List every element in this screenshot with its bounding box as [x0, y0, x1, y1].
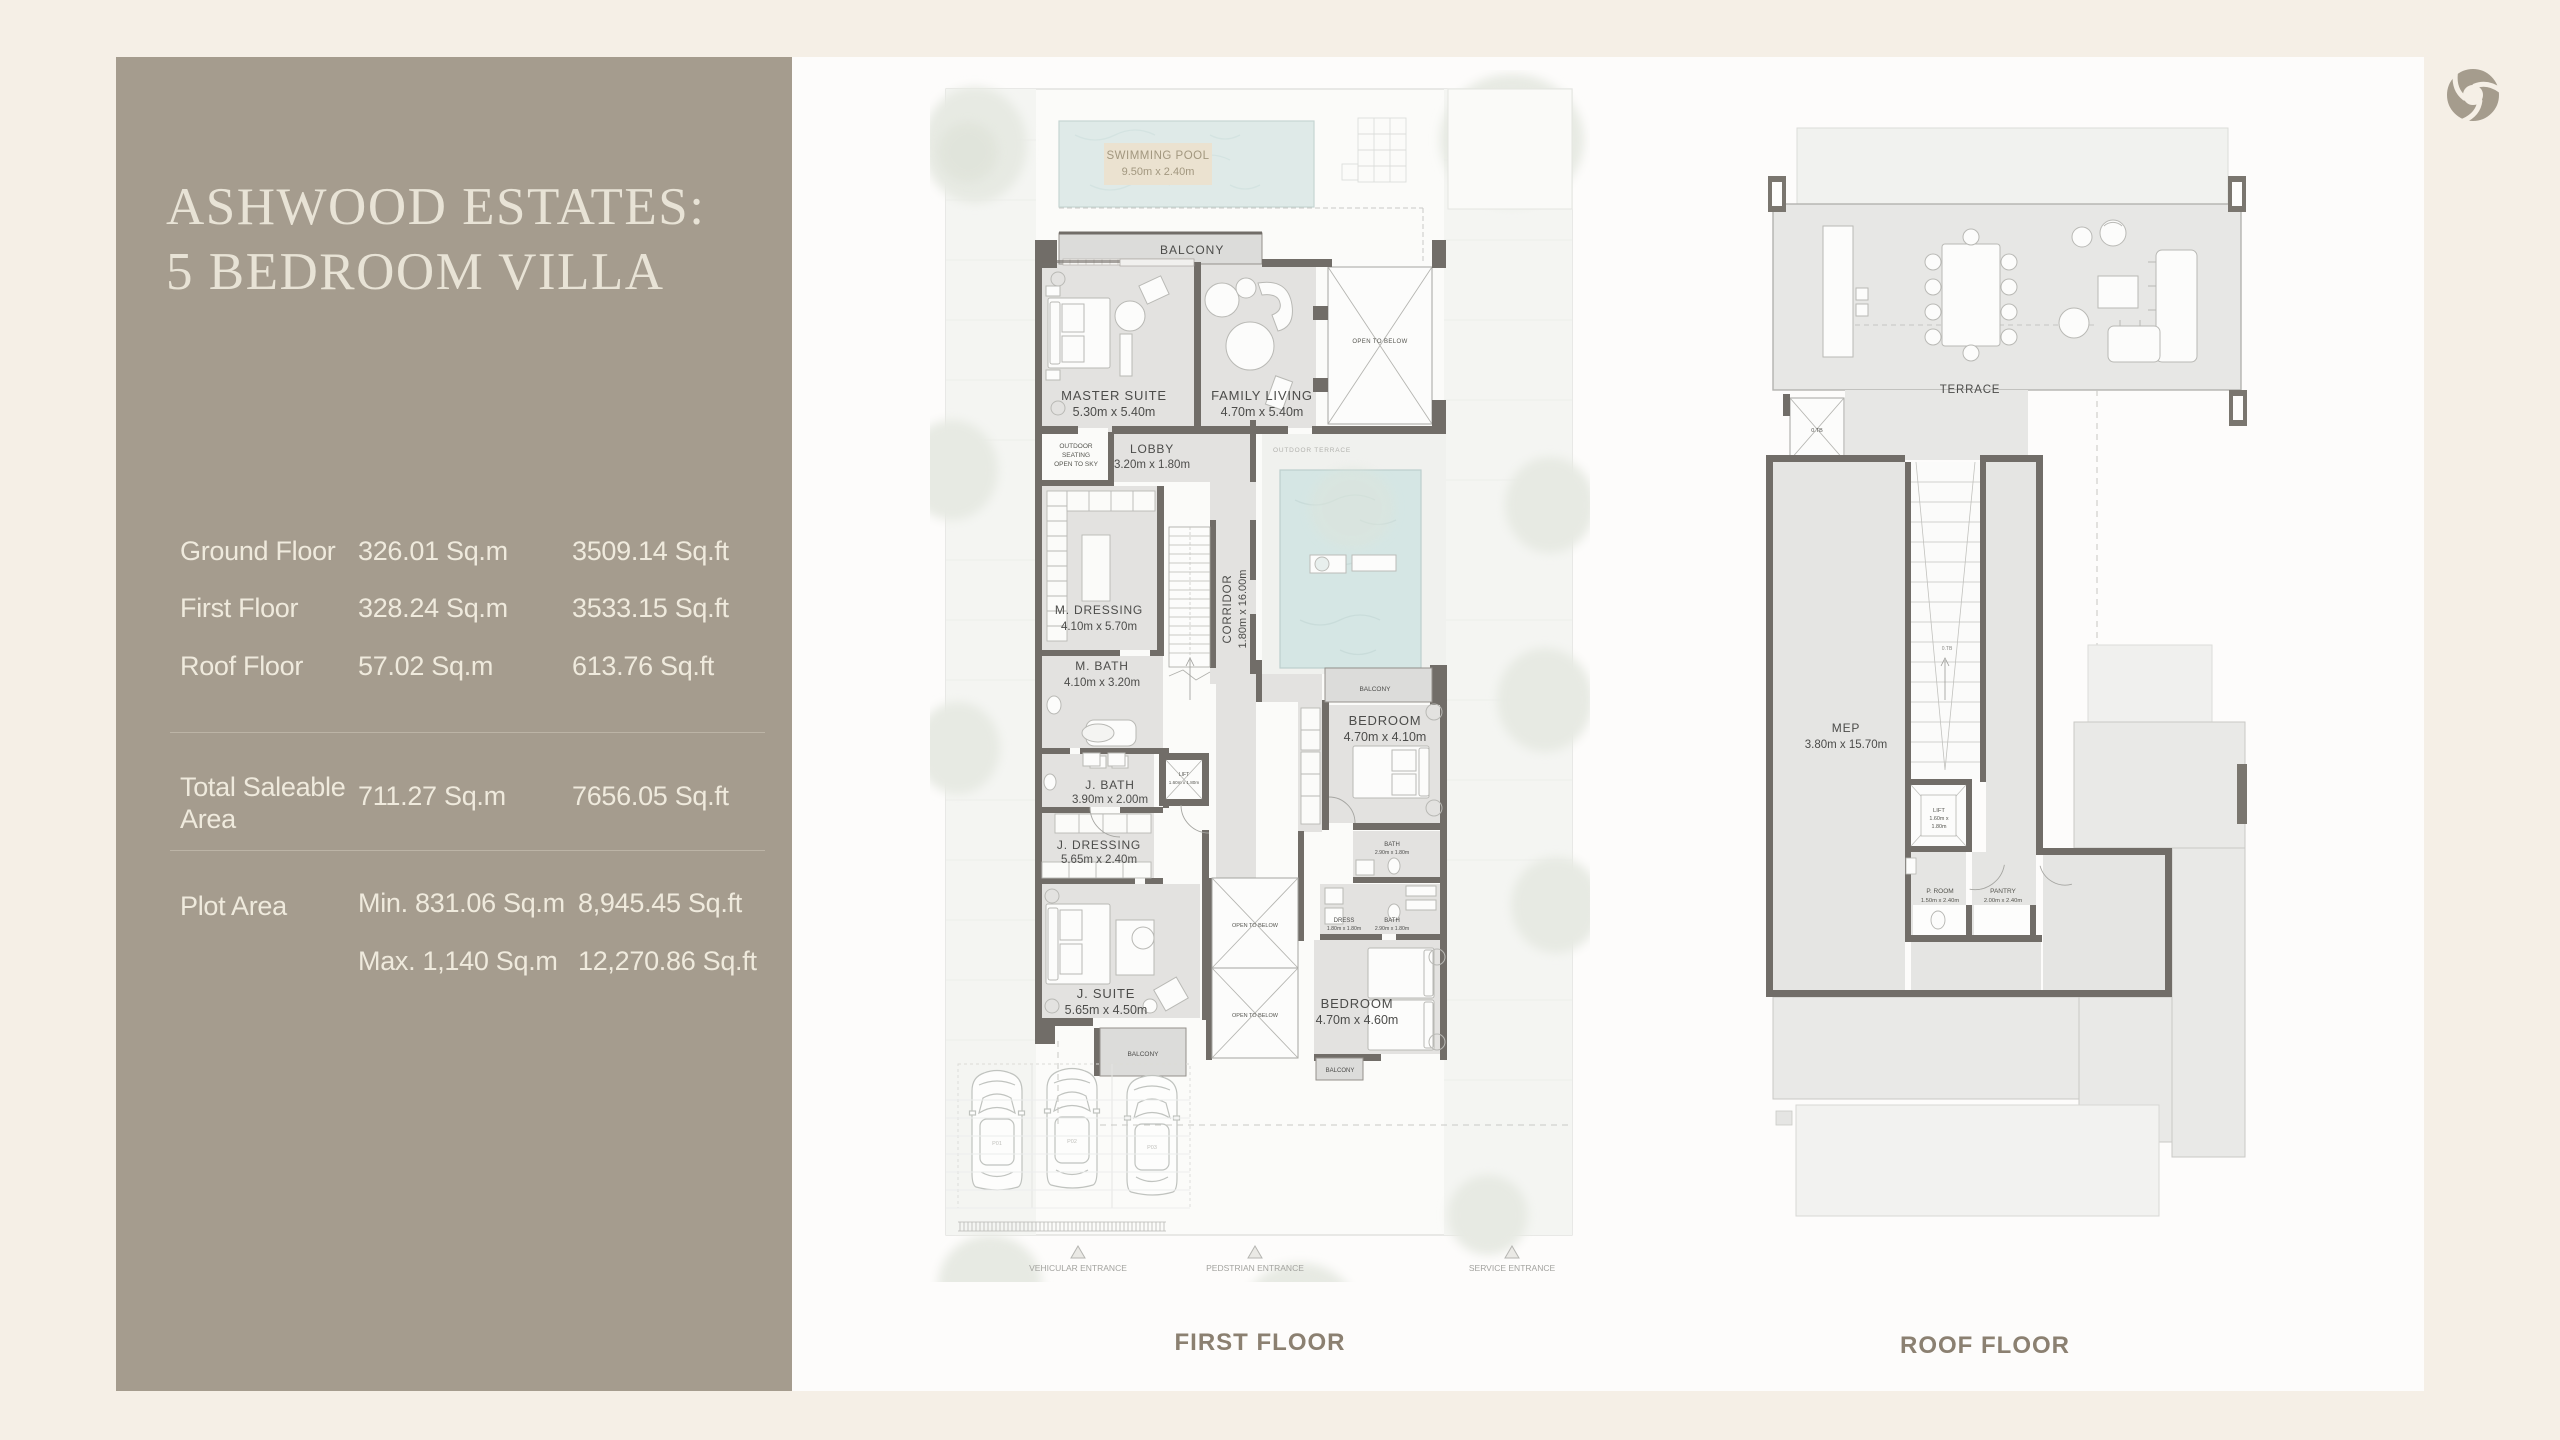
- svg-text:BALCONY: BALCONY: [1326, 1068, 1355, 1074]
- svg-text:CORRIDOR: CORRIDOR: [1222, 574, 1234, 643]
- svg-text:OPEN TO BELOW: OPEN TO BELOW: [1232, 923, 1279, 929]
- svg-text:0.TB: 0.TB: [1811, 428, 1823, 434]
- svg-text:2.00m x 2.40m: 2.00m x 2.40m: [1984, 898, 2023, 904]
- svg-text:P01: P01: [992, 1141, 1002, 1147]
- svg-text:9.50m x 2.40m: 9.50m x 2.40m: [1122, 166, 1195, 178]
- svg-text:0.TB: 0.TB: [1942, 646, 1953, 652]
- svg-text:J. BATH: J. BATH: [1085, 778, 1134, 792]
- svg-text:OPEN TO BELOW: OPEN TO BELOW: [1232, 1013, 1279, 1019]
- svg-text:5.65m x 4.50m: 5.65m x 4.50m: [1065, 1003, 1148, 1017]
- svg-text:1.60m x 1.80m: 1.60m x 1.80m: [1169, 780, 1200, 785]
- svg-text:BALCONY: BALCONY: [1127, 1051, 1159, 1058]
- svg-text:2.90m x 1.80m: 2.90m x 1.80m: [1375, 926, 1409, 932]
- svg-text:M. DRESSING: M. DRESSING: [1055, 603, 1143, 617]
- svg-text:BEDROOM: BEDROOM: [1321, 996, 1394, 1011]
- svg-text:TERRACE: TERRACE: [1940, 384, 2001, 396]
- svg-text:1.80m x 1.80m: 1.80m x 1.80m: [1327, 926, 1361, 932]
- svg-text:BEDROOM: BEDROOM: [1349, 713, 1422, 728]
- svg-text:5.30m x 5.40m: 5.30m x 5.40m: [1073, 405, 1156, 419]
- svg-text:BALCONY: BALCONY: [1359, 686, 1391, 693]
- svg-text:VEHICULAR ENTRANCE: VEHICULAR ENTRANCE: [1029, 1263, 1127, 1273]
- svg-text:BATH: BATH: [1384, 842, 1400, 848]
- svg-text:PANTRY: PANTRY: [1990, 888, 2016, 895]
- svg-text:J. SUITE: J. SUITE: [1077, 986, 1135, 1001]
- svg-text:4.70m x 4.10m: 4.70m x 4.10m: [1344, 730, 1427, 744]
- svg-text:BALCONY: BALCONY: [1160, 243, 1224, 257]
- svg-text:OUTDOOR: OUTDOOR: [1059, 443, 1093, 450]
- svg-text:DRESS: DRESS: [1334, 918, 1355, 924]
- svg-text:1.80m x 16.00m: 1.80m x 16.00m: [1237, 570, 1249, 649]
- svg-text:P03: P03: [1147, 1145, 1157, 1151]
- svg-text:FAMILY LIVING: FAMILY LIVING: [1211, 388, 1313, 403]
- svg-text:P02: P02: [1067, 1139, 1077, 1145]
- svg-text:MEP: MEP: [1832, 721, 1860, 735]
- svg-text:SERVICE ENTRANCE: SERVICE ENTRANCE: [1469, 1263, 1556, 1273]
- svg-text:M. BATH: M. BATH: [1075, 659, 1128, 673]
- svg-text:OPEN TO SKY: OPEN TO SKY: [1054, 461, 1098, 468]
- svg-text:4.70m x 5.40m: 4.70m x 5.40m: [1221, 405, 1304, 419]
- svg-text:BATH: BATH: [1384, 918, 1400, 924]
- svg-text:SEATING: SEATING: [1062, 452, 1090, 459]
- svg-text:LIFT: LIFT: [1933, 808, 1945, 814]
- svg-text:1.50m x 2.40m: 1.50m x 2.40m: [1921, 898, 1960, 904]
- svg-text:MASTER SUITE: MASTER SUITE: [1061, 388, 1167, 403]
- svg-text:5.65m x 2.40m: 5.65m x 2.40m: [1061, 854, 1137, 866]
- svg-text:OPEN TO BELOW: OPEN TO BELOW: [1352, 339, 1407, 345]
- svg-text:3.20m x 1.80m: 3.20m x 1.80m: [1114, 459, 1190, 471]
- svg-text:1.80m: 1.80m: [1932, 824, 1947, 830]
- svg-text:PEDSTRIAN ENTRANCE: PEDSTRIAN ENTRANCE: [1206, 1263, 1304, 1273]
- svg-text:2.90m x 1.80m: 2.90m x 1.80m: [1375, 850, 1409, 856]
- svg-text:3.80m x 15.70m: 3.80m x 15.70m: [1805, 739, 1887, 751]
- svg-text:SWIMMING POOL: SWIMMING POOL: [1107, 150, 1210, 162]
- svg-text:OUTDOOR TERRACE: OUTDOOR TERRACE: [1273, 447, 1351, 454]
- svg-text:LOBBY: LOBBY: [1130, 442, 1174, 456]
- svg-text:4.70m x 4.60m: 4.70m x 4.60m: [1316, 1013, 1399, 1027]
- svg-text:4.10m x 3.20m: 4.10m x 3.20m: [1064, 677, 1140, 689]
- svg-text:P. ROOM: P. ROOM: [1926, 888, 1953, 895]
- svg-text:LIFT: LIFT: [1179, 772, 1189, 778]
- svg-text:J. DRESSING: J. DRESSING: [1057, 838, 1141, 852]
- svg-text:1.60m x: 1.60m x: [1929, 816, 1948, 822]
- svg-text:4.10m x 5.70m: 4.10m x 5.70m: [1061, 621, 1137, 633]
- svg-text:3.90m x 2.00m: 3.90m x 2.00m: [1072, 794, 1148, 806]
